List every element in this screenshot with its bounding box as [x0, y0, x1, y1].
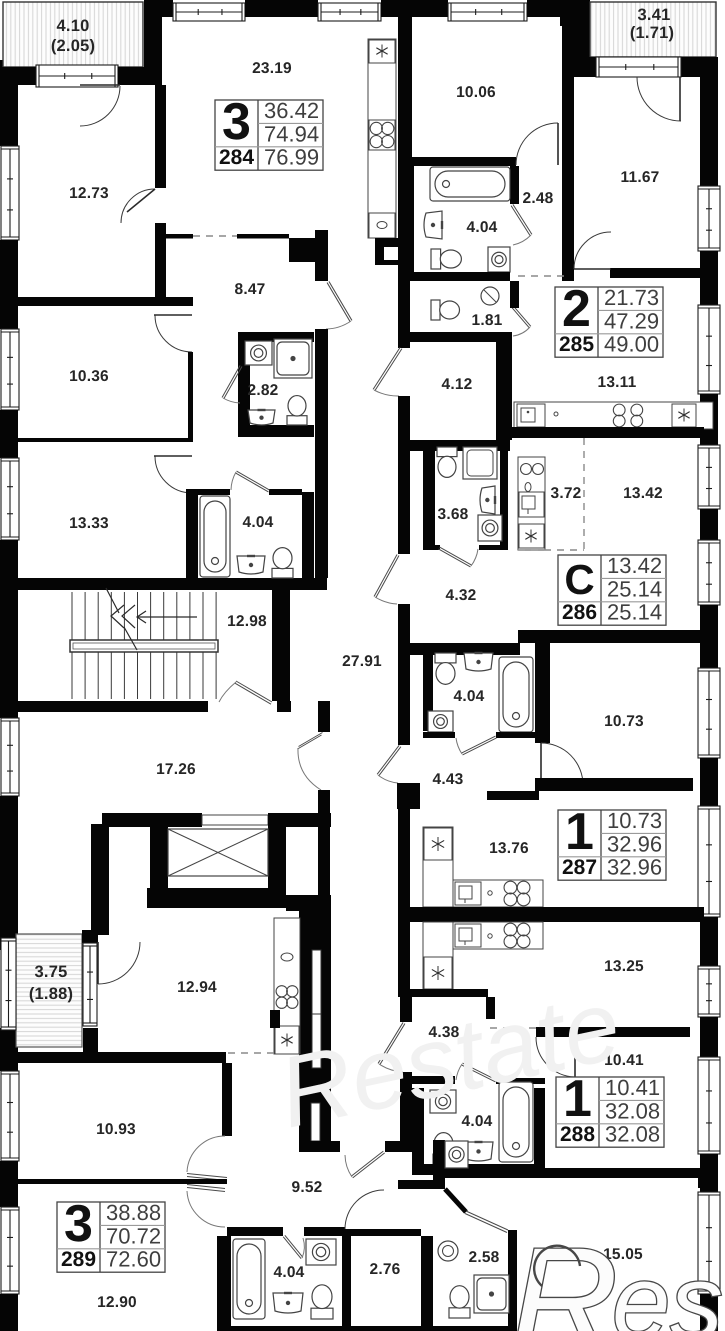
- svg-text:13.76: 13.76: [489, 840, 529, 857]
- svg-text:12.98: 12.98: [227, 613, 267, 630]
- svg-text:11.67: 11.67: [621, 169, 660, 186]
- svg-text:32.96: 32.96: [607, 831, 662, 856]
- svg-text:27.91: 27.91: [342, 653, 382, 670]
- svg-text:2.76: 2.76: [370, 1261, 401, 1278]
- svg-text:23.19: 23.19: [252, 60, 292, 77]
- svg-text:(1.88): (1.88): [29, 985, 73, 1003]
- svg-text:4.04: 4.04: [467, 219, 498, 236]
- svg-text:3.75: 3.75: [35, 963, 68, 981]
- svg-text:10.73: 10.73: [607, 808, 662, 833]
- svg-text:8.47: 8.47: [235, 281, 266, 298]
- svg-text:4.32: 4.32: [446, 587, 477, 604]
- svg-text:2.58: 2.58: [469, 1249, 500, 1266]
- svg-text:32.96: 32.96: [607, 855, 662, 880]
- svg-text:13.25: 13.25: [604, 958, 644, 975]
- svg-text:13.42: 13.42: [623, 485, 663, 502]
- svg-text:R: R: [510, 1216, 618, 1331]
- svg-text:74.94: 74.94: [264, 121, 319, 146]
- svg-text:32.08: 32.08: [605, 1122, 660, 1147]
- svg-text:284: 284: [219, 146, 254, 169]
- svg-text:76.99: 76.99: [264, 145, 319, 170]
- svg-text:3: 3: [64, 1195, 93, 1253]
- svg-text:(1.71): (1.71): [630, 24, 674, 42]
- svg-text:36.42: 36.42: [264, 98, 319, 123]
- svg-text:4.04: 4.04: [274, 1264, 305, 1281]
- svg-text:286: 286: [562, 601, 597, 624]
- svg-text:13.11: 13.11: [598, 374, 637, 391]
- svg-text:2.82: 2.82: [248, 382, 279, 399]
- svg-text:4.12: 4.12: [442, 376, 473, 393]
- svg-text:12.90: 12.90: [97, 1294, 137, 1311]
- svg-text:72.60: 72.60: [106, 1247, 161, 1272]
- svg-text:3.72: 3.72: [551, 485, 582, 502]
- svg-text:13.42: 13.42: [607, 553, 662, 578]
- svg-text:2.48: 2.48: [523, 190, 554, 207]
- svg-text:38.88: 38.88: [106, 1200, 161, 1225]
- svg-text:4.04: 4.04: [243, 514, 274, 531]
- svg-text:12.73: 12.73: [69, 185, 109, 202]
- svg-text:287: 287: [562, 856, 597, 879]
- svg-text:13.33: 13.33: [69, 515, 109, 532]
- svg-text:4.04: 4.04: [462, 1113, 493, 1130]
- svg-text:10.93: 10.93: [96, 1121, 136, 1138]
- svg-text:С: С: [564, 556, 594, 603]
- svg-text:3.41: 3.41: [638, 6, 671, 24]
- svg-text:21.73: 21.73: [604, 285, 659, 310]
- svg-text:25.14: 25.14: [607, 576, 662, 601]
- svg-text:3.68: 3.68: [438, 506, 469, 523]
- svg-text:3: 3: [222, 93, 251, 151]
- svg-text:32.08: 32.08: [605, 1098, 660, 1123]
- svg-text:70.72: 70.72: [106, 1223, 161, 1248]
- svg-text:(2.05): (2.05): [51, 37, 95, 55]
- svg-text:12.94: 12.94: [177, 979, 217, 996]
- svg-text:17.26: 17.26: [156, 761, 196, 778]
- svg-text:10.36: 10.36: [69, 368, 109, 385]
- svg-text:4.10: 4.10: [57, 17, 90, 35]
- svg-text:49.00: 49.00: [604, 332, 659, 357]
- svg-text:47.29: 47.29: [604, 308, 659, 333]
- svg-text:estate: estate: [612, 1244, 725, 1331]
- svg-text:4.04: 4.04: [454, 688, 485, 705]
- svg-text:288: 288: [560, 1123, 595, 1146]
- svg-text:1.81: 1.81: [472, 312, 503, 329]
- svg-text:10.73: 10.73: [604, 713, 644, 730]
- svg-text:4.43: 4.43: [433, 771, 464, 788]
- svg-text:10.06: 10.06: [456, 84, 496, 101]
- svg-text:1: 1: [565, 803, 594, 861]
- svg-text:9.52: 9.52: [292, 1179, 323, 1196]
- svg-text:289: 289: [61, 1248, 96, 1271]
- svg-text:25.14: 25.14: [607, 600, 662, 625]
- svg-text:2: 2: [562, 280, 591, 338]
- svg-text:285: 285: [559, 333, 594, 356]
